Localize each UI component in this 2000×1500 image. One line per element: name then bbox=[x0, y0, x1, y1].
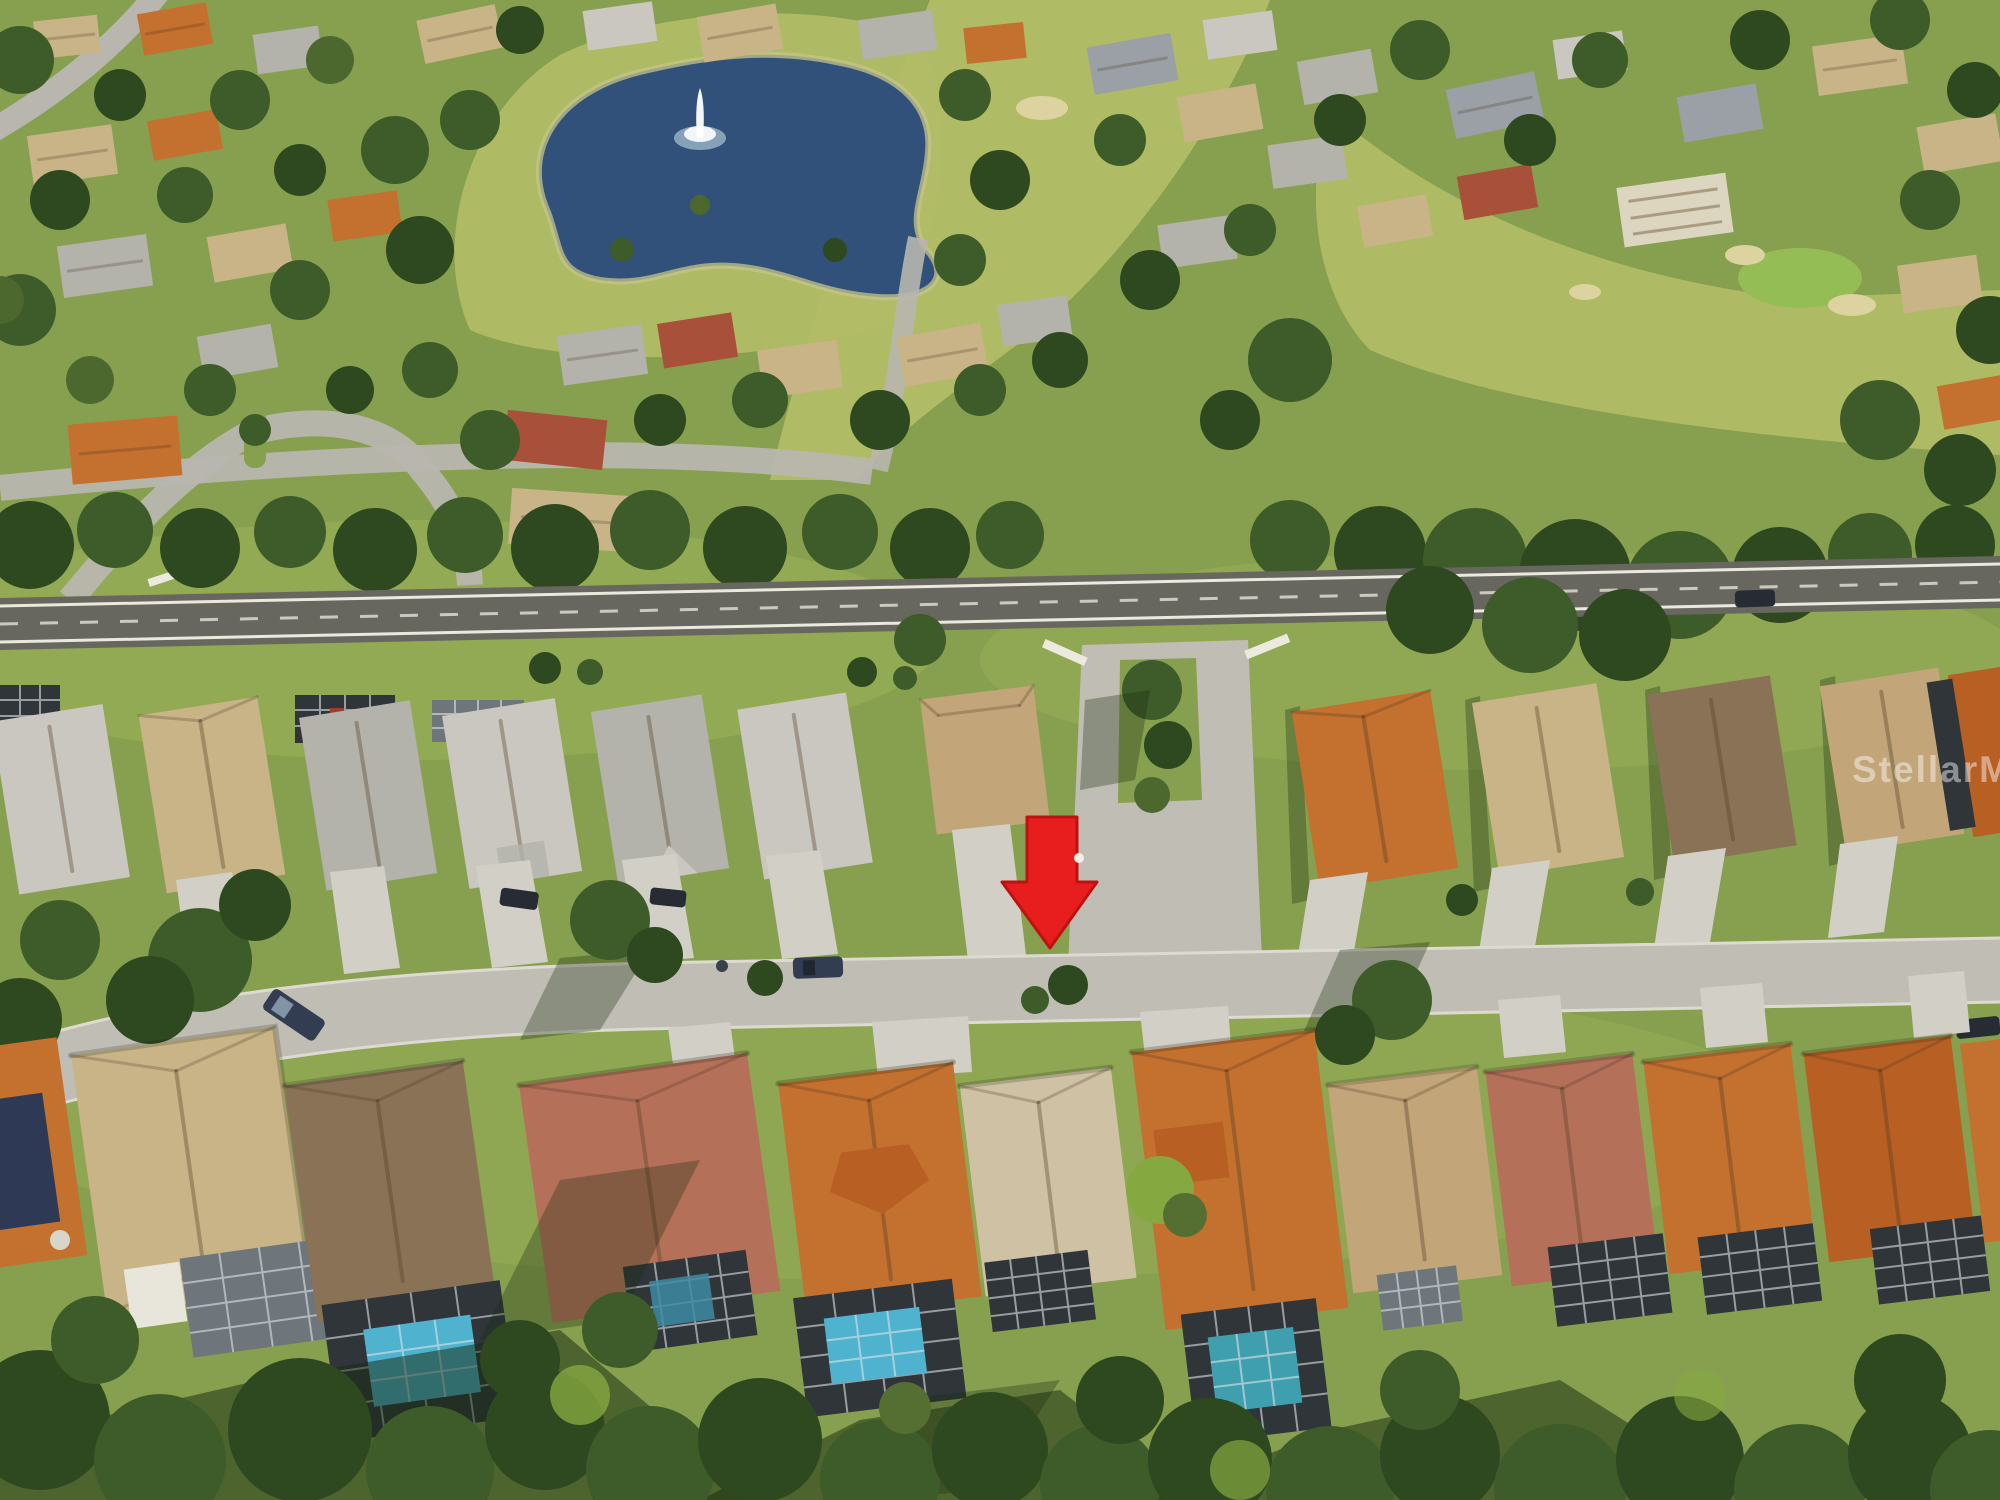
pool-cage bbox=[1870, 1215, 1990, 1304]
house-roof bbox=[1292, 690, 1458, 890]
pool-cage bbox=[984, 1250, 1096, 1332]
swimming-pool bbox=[824, 1307, 927, 1384]
street-object bbox=[716, 960, 728, 972]
mailbox bbox=[1074, 853, 1084, 863]
sand-bunker bbox=[1725, 245, 1765, 265]
pool-cage bbox=[1698, 1223, 1823, 1315]
house-roof bbox=[963, 22, 1026, 64]
shrub bbox=[1626, 878, 1654, 906]
house-roof bbox=[284, 1061, 495, 1322]
pool-cage bbox=[1548, 1233, 1673, 1327]
shrub bbox=[1446, 884, 1478, 916]
house-roof bbox=[68, 415, 183, 484]
stellar-mls-watermark: StellarMLS bbox=[1852, 749, 2000, 790]
car-on-main-road bbox=[1735, 589, 1776, 607]
swimming-pool bbox=[649, 1273, 715, 1327]
aerial-photo-canvas: StellarMLS bbox=[0, 0, 2000, 1500]
sand-bunker bbox=[1828, 294, 1876, 316]
sand-bunker bbox=[1016, 96, 1068, 120]
car-on-street bbox=[793, 956, 844, 979]
pond bbox=[539, 55, 937, 298]
pool-cage bbox=[1377, 1265, 1463, 1330]
sand-bunker bbox=[1569, 284, 1601, 300]
house-roof bbox=[920, 686, 1050, 835]
house-roof bbox=[1328, 1067, 1502, 1294]
pond-group bbox=[539, 55, 937, 298]
aerial-photo: StellarMLS bbox=[0, 0, 2000, 1500]
